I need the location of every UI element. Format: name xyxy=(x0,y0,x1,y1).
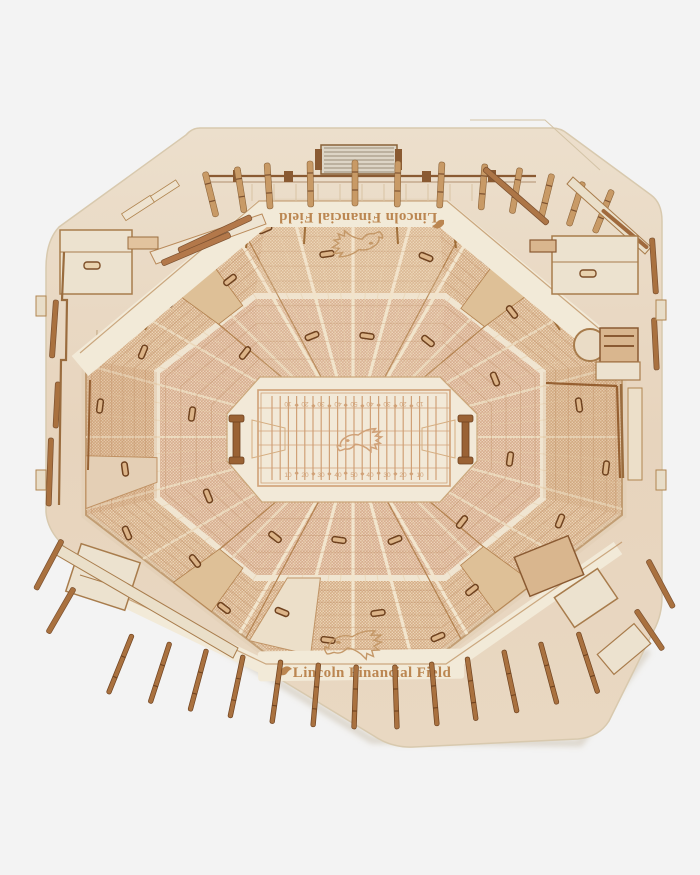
svg-text:10: 10 xyxy=(284,472,292,479)
svg-text:20: 20 xyxy=(301,472,309,479)
svg-text:40: 40 xyxy=(366,472,374,479)
svg-text:40: 40 xyxy=(366,400,374,407)
svg-text:Lincoln Financial Field: Lincoln Financial Field xyxy=(279,209,438,225)
svg-text:20: 20 xyxy=(399,472,407,479)
svg-text:50: 50 xyxy=(350,472,358,479)
svg-text:40: 40 xyxy=(334,400,342,407)
svg-text:10: 10 xyxy=(416,400,424,407)
svg-text:30: 30 xyxy=(317,472,325,479)
svg-text:20: 20 xyxy=(399,400,407,407)
svg-text:30: 30 xyxy=(383,400,391,407)
svg-text:50: 50 xyxy=(350,400,358,407)
svg-text:10: 10 xyxy=(416,472,424,479)
svg-text:20: 20 xyxy=(301,400,309,407)
svg-text:40: 40 xyxy=(334,472,342,479)
svg-text:10: 10 xyxy=(284,400,292,407)
svg-text:30: 30 xyxy=(383,472,391,479)
svg-text:30: 30 xyxy=(317,400,325,407)
